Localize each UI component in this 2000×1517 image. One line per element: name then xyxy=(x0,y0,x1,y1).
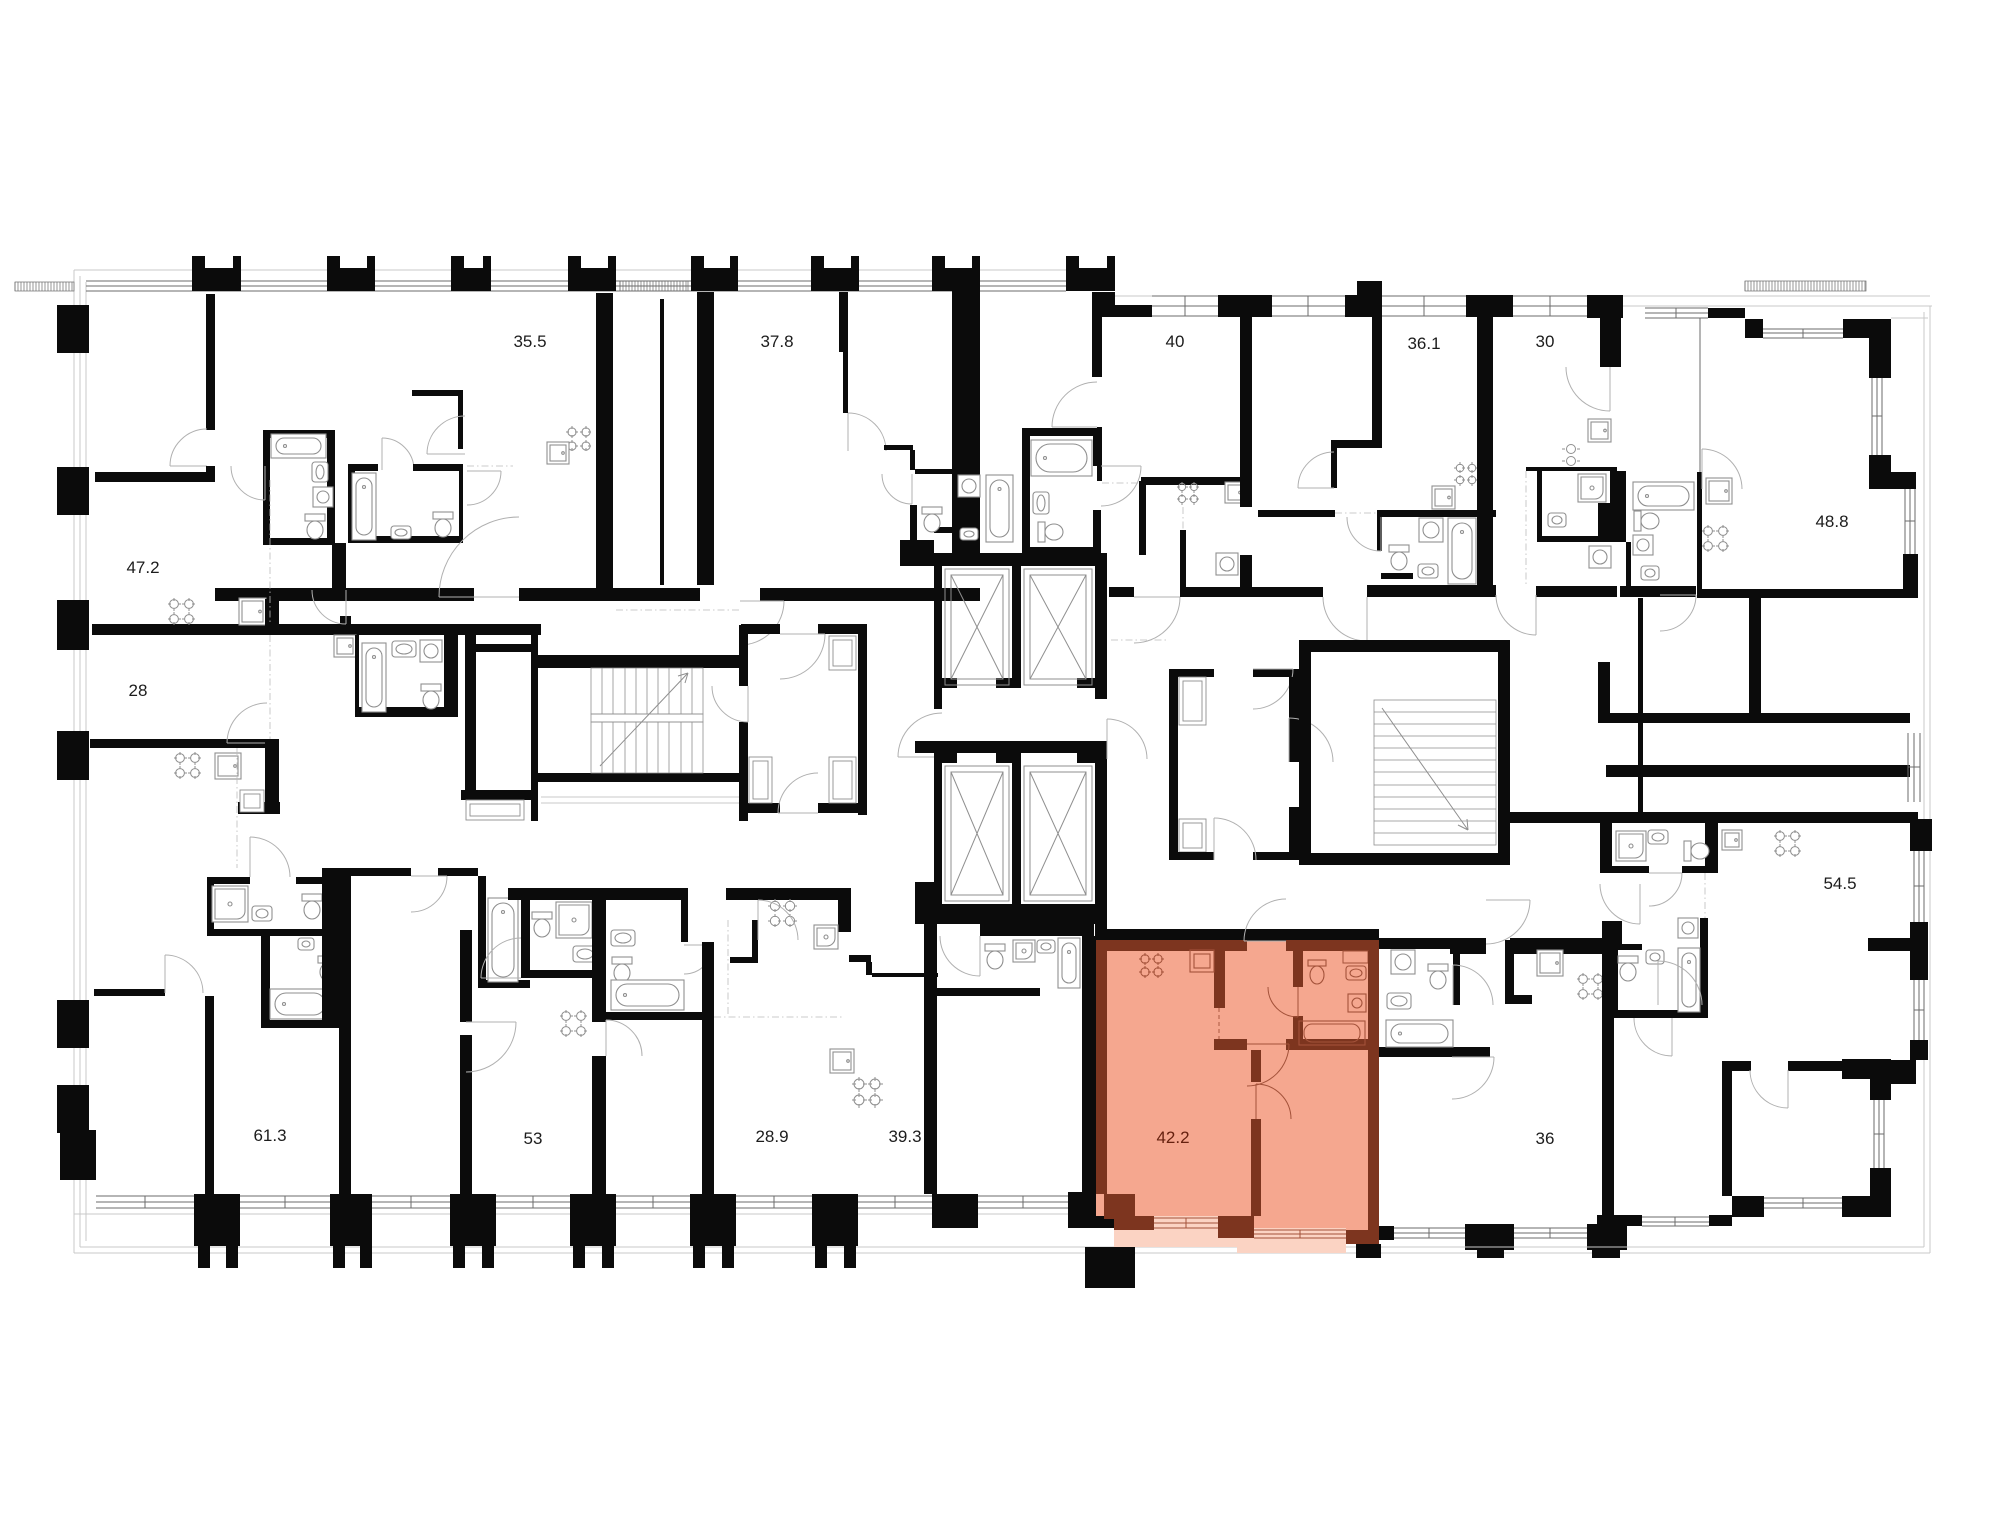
svg-text:28.9: 28.9 xyxy=(755,1127,788,1146)
svg-text:28: 28 xyxy=(129,681,148,700)
svg-text:53: 53 xyxy=(524,1129,543,1148)
svg-text:47.2: 47.2 xyxy=(126,558,159,577)
svg-text:35.5: 35.5 xyxy=(513,332,546,351)
svg-text:54.5: 54.5 xyxy=(1823,874,1856,893)
svg-text:39.3: 39.3 xyxy=(888,1127,921,1146)
svg-text:30: 30 xyxy=(1536,332,1555,351)
svg-text:37.8: 37.8 xyxy=(760,332,793,351)
svg-text:42.2: 42.2 xyxy=(1156,1128,1189,1147)
svg-text:48.8: 48.8 xyxy=(1815,512,1848,531)
svg-text:36.1: 36.1 xyxy=(1407,334,1440,353)
svg-text:61.3: 61.3 xyxy=(253,1126,286,1145)
svg-text:40: 40 xyxy=(1166,332,1185,351)
svg-text:36: 36 xyxy=(1536,1129,1555,1148)
